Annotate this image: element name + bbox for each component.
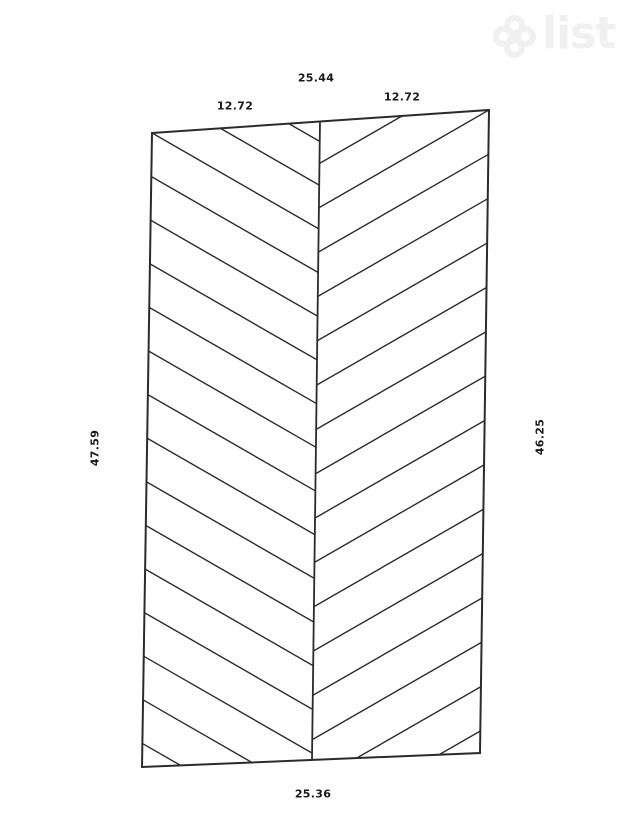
clover-petal (504, 37, 525, 58)
dimension-bottom: 25.36 (295, 788, 331, 801)
dimension-right-side: 46.25 (534, 419, 547, 455)
dimension-top-left-half: 12.72 (217, 100, 253, 113)
center-divider-line (312, 121, 320, 760)
hatch-right-half (295, 0, 505, 838)
dimension-left-side: 47.59 (89, 430, 102, 466)
watermark-wordmark: list (542, 8, 615, 59)
dimension-top-right-half: 12.72 (384, 91, 420, 104)
dimension-top-total: 25.44 (298, 72, 334, 85)
hatch-left-half (120, 0, 345, 838)
plot-plan-stage: 25.44 12.72 12.72 47.59 46.25 25.36 list (0, 0, 641, 838)
clover-icon (493, 19, 537, 63)
list-watermark-logo: list (490, 14, 635, 70)
